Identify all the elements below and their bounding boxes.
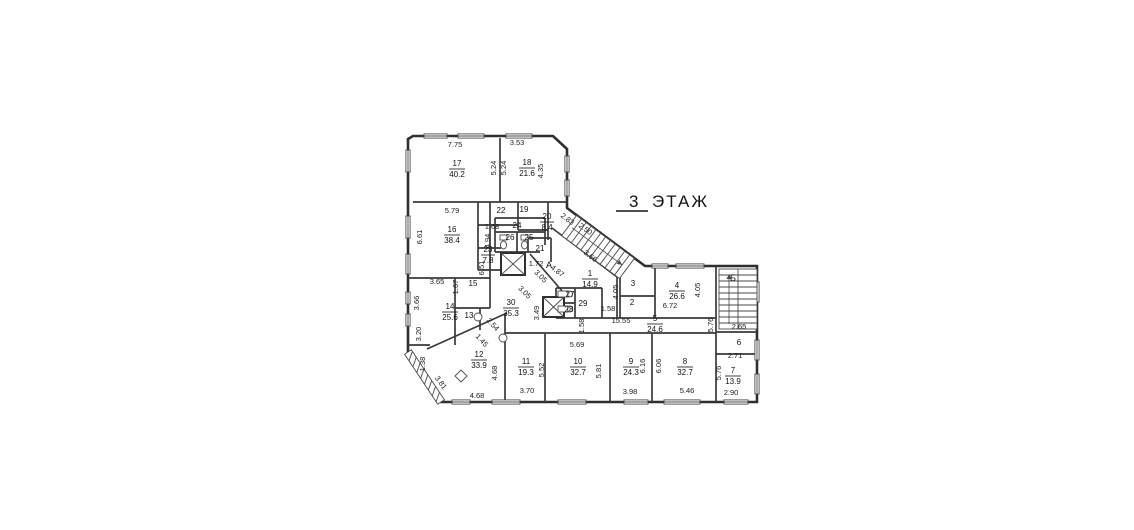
svg-text:1.68: 1.68 — [485, 222, 500, 231]
svg-text:8: 8 — [683, 357, 688, 366]
svg-text:3.05: 3.05 — [516, 284, 533, 301]
room-19-label: 19 — [520, 205, 529, 214]
svg-text:3.53: 3.53 — [510, 138, 525, 147]
room-16-label: 1638.4 — [444, 225, 460, 245]
svg-text:10: 10 — [574, 357, 583, 366]
room-30-label: 3035.3 — [503, 298, 519, 318]
floor-title: 3 ЭТАЖ — [616, 192, 709, 211]
svg-text:5.81: 5.81 — [594, 364, 603, 379]
room-13-label: 13 — [465, 311, 474, 320]
svg-text:6.51: 6.51 — [477, 261, 486, 276]
room-21-label: 21 — [536, 244, 545, 253]
svg-text:26.6: 26.6 — [669, 292, 685, 301]
svg-text:14: 14 — [446, 302, 455, 311]
svg-text:1.38: 1.38 — [418, 357, 427, 372]
svg-text:1.72: 1.72 — [529, 259, 544, 268]
svg-text:24.3: 24.3 — [623, 368, 639, 377]
svg-text:25.6: 25.6 — [442, 313, 458, 322]
svg-text:5.24: 5.24 — [499, 161, 508, 176]
room-29-label: 29 — [579, 299, 588, 308]
svg-text:5.76: 5.76 — [706, 318, 715, 333]
svg-text:15.55: 15.55 — [612, 316, 631, 325]
room-2-label: 2 — [630, 298, 635, 307]
room-22-label: 22 — [497, 206, 506, 215]
room-4-label: 426.6 — [669, 281, 685, 301]
svg-text:19.3: 19.3 — [518, 368, 534, 377]
svg-text:4.05: 4.05 — [693, 283, 702, 298]
svg-text:8.4: 8.4 — [541, 223, 553, 232]
room-3-label: 3 — [631, 279, 636, 288]
svg-text:32.7: 32.7 — [570, 368, 586, 377]
staircase-b — [719, 269, 757, 329]
svg-text:38.4: 38.4 — [444, 236, 460, 245]
svg-text:7.75: 7.75 — [448, 140, 463, 149]
room-25-label: 25 — [525, 233, 534, 242]
svg-text:2.71: 2.71 — [728, 351, 743, 360]
room-15-label: 15 — [469, 279, 478, 288]
svg-text:2.54: 2.54 — [485, 316, 501, 333]
floor-title-number: 3 — [629, 192, 640, 211]
svg-text:11: 11 — [522, 357, 531, 366]
svg-text:33.9: 33.9 — [471, 361, 487, 370]
svg-text:3.20: 3.20 — [414, 327, 423, 342]
svg-text:1.45: 1.45 — [474, 332, 490, 349]
svg-text:14.9: 14.9 — [582, 280, 598, 289]
room-12-label: 1233.9 — [471, 350, 487, 370]
room-9-label: 924.3 — [623, 357, 639, 377]
svg-text:20: 20 — [543, 212, 552, 221]
svg-text:35.3: 35.3 — [503, 309, 519, 318]
room-5-label: 524.6 — [647, 314, 663, 334]
room-8-label: 832.7 — [677, 357, 693, 377]
staircase-a — [562, 216, 635, 279]
svg-text:5.46: 5.46 — [680, 386, 695, 395]
room-1-label: 114.9 — [582, 269, 598, 289]
svg-text:4.68: 4.68 — [490, 366, 499, 381]
floor-plan-page: 1740.2 1821.6 1638.4 208.4 237.8 1425.6 … — [0, 0, 1134, 530]
svg-text:3.49: 3.49 — [532, 306, 541, 321]
room-14-label: 1425.6 — [442, 302, 458, 322]
room-27-label: 27 — [566, 290, 575, 299]
svg-text:1.67: 1.67 — [451, 280, 460, 295]
svg-text:5.24: 5.24 — [489, 161, 498, 176]
svg-text:1.58: 1.58 — [577, 319, 586, 334]
room-11-label: 1119.3 — [518, 357, 534, 377]
svg-text:6.72: 6.72 — [663, 301, 678, 310]
svg-text:16: 16 — [448, 225, 457, 234]
svg-text:4.05: 4.05 — [611, 285, 620, 300]
svg-text:3.70: 3.70 — [520, 386, 535, 395]
svg-text:2.90: 2.90 — [724, 388, 739, 397]
room-20-label: 208.4 — [540, 212, 554, 232]
svg-text:4.35: 4.35 — [536, 164, 545, 179]
svg-text:2.65: 2.65 — [732, 322, 747, 331]
svg-text:4.87: 4.87 — [549, 263, 566, 279]
svg-text:9: 9 — [629, 357, 634, 366]
stairwell-b-letter: Б — [730, 273, 736, 283]
svg-text:13.9: 13.9 — [725, 377, 741, 386]
svg-text:4: 4 — [675, 281, 680, 290]
svg-text:7: 7 — [731, 366, 736, 375]
room-24-label: 24 — [513, 221, 522, 230]
svg-text:5.52: 5.52 — [537, 363, 546, 378]
svg-text:1: 1 — [588, 269, 593, 278]
svg-text:3.66: 3.66 — [412, 296, 421, 311]
svg-text:30: 30 — [507, 298, 516, 307]
svg-text:18: 18 — [523, 158, 532, 167]
room-10-label: 1032.7 — [570, 357, 586, 377]
svg-text:6.61: 6.61 — [415, 230, 424, 245]
svg-text:4.68: 4.68 — [470, 391, 485, 400]
room-26-label: 26 — [506, 233, 515, 242]
svg-text:3.05: 3.05 — [532, 268, 549, 285]
elevator-shaft-1 — [501, 253, 525, 275]
svg-text:5.69: 5.69 — [570, 340, 585, 349]
room-17-label: 1740.2 — [449, 159, 465, 179]
room-6-label: 6 — [737, 338, 742, 347]
svg-text:5.79: 5.79 — [445, 206, 460, 215]
svg-text:3.98: 3.98 — [623, 387, 638, 396]
room-7-label: 713.9 — [725, 366, 741, 386]
svg-text:6.06: 6.06 — [654, 359, 663, 374]
svg-text:32.7: 32.7 — [677, 368, 693, 377]
svg-text:1.58: 1.58 — [601, 304, 616, 313]
svg-text:17: 17 — [453, 159, 462, 168]
svg-text:40.2: 40.2 — [449, 170, 465, 179]
svg-text:5: 5 — [653, 314, 658, 323]
floor-plan-drawing: 1740.2 1821.6 1638.4 208.4 237.8 1425.6 … — [0, 0, 1134, 530]
svg-text:5.76: 5.76 — [714, 366, 723, 381]
svg-text:24.6: 24.6 — [647, 325, 663, 334]
svg-text:6.16: 6.16 — [638, 359, 647, 374]
room-28-label: 28 — [565, 305, 574, 314]
room-18-label: 1821.6 — [519, 158, 535, 178]
svg-text:12: 12 — [475, 350, 484, 359]
floor-title-word: ЭТАЖ — [652, 192, 709, 211]
svg-text:21.6: 21.6 — [519, 169, 535, 178]
svg-text:4.94: 4.94 — [483, 234, 492, 249]
svg-text:3.65: 3.65 — [430, 277, 445, 286]
